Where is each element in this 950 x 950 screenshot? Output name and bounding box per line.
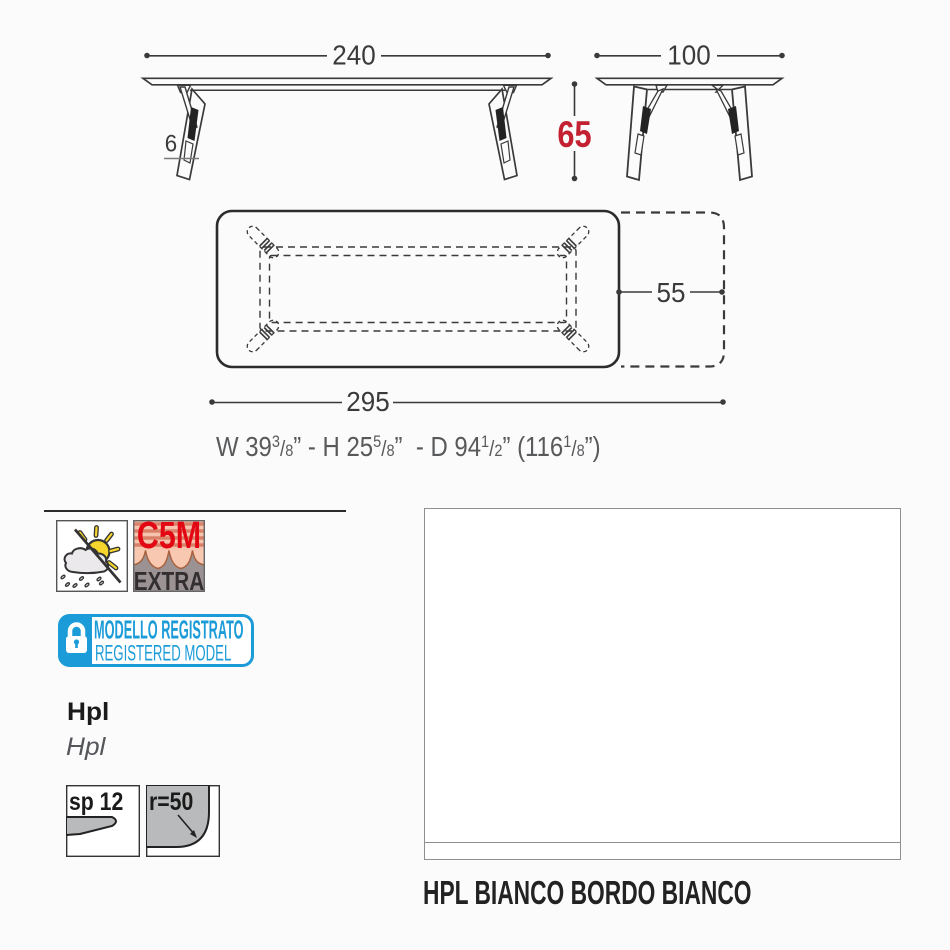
svg-text:sp 12: sp 12 (69, 787, 123, 815)
svg-text:65: 65 (557, 114, 591, 156)
svg-text:240: 240 (332, 40, 375, 71)
svg-text:EXTRA: EXTRA (134, 567, 204, 592)
svg-text:100: 100 (667, 40, 710, 71)
svg-text:295: 295 (346, 386, 389, 417)
svg-text:6: 6 (165, 130, 177, 157)
svg-text:REGISTERED MODEL: REGISTERED MODEL (95, 641, 231, 665)
svg-text:r=50: r=50 (149, 787, 193, 815)
svg-text:C5M: C5M (137, 520, 201, 557)
svg-text:55: 55 (657, 277, 686, 308)
